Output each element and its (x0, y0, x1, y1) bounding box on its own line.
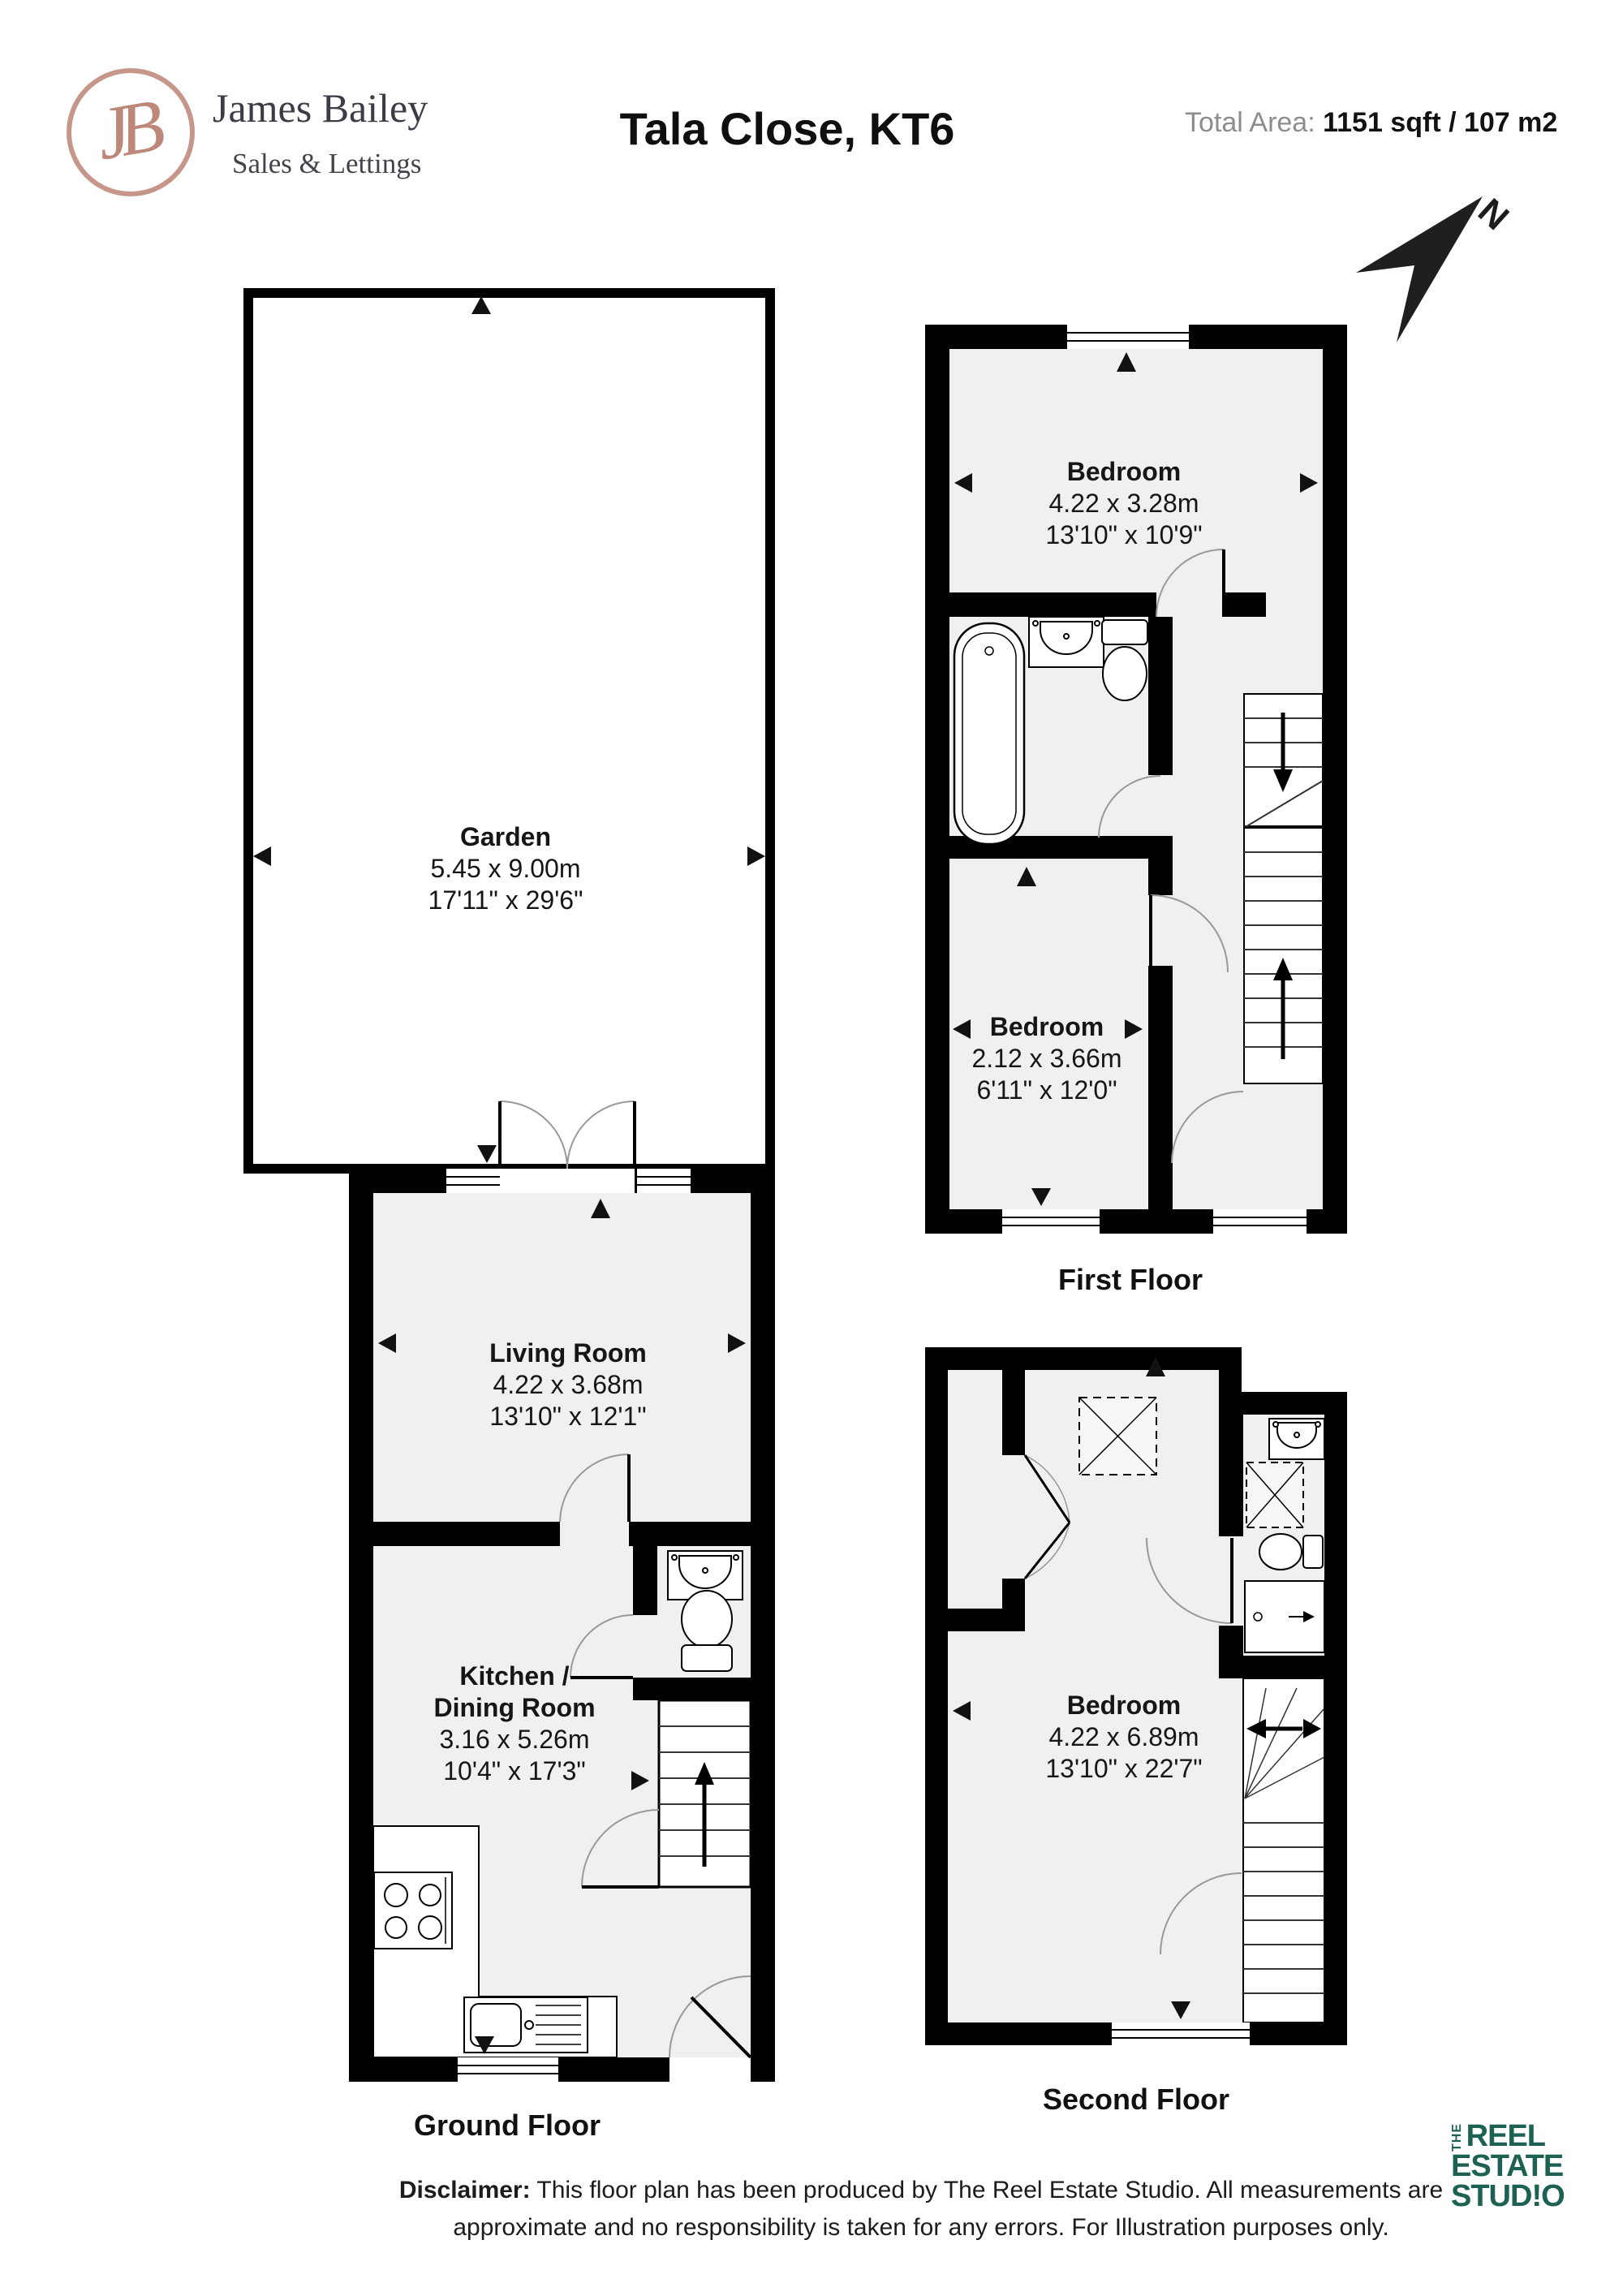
interior-wall (925, 592, 1156, 617)
window (1067, 325, 1189, 349)
stairs-icon (1244, 694, 1323, 1083)
toilet-icon (682, 1591, 732, 1671)
north-arrow-icon: N (1351, 188, 1513, 351)
window (458, 2057, 558, 2082)
studio-logo-estate: ESTATE (1451, 2152, 1565, 2182)
total-area: Total Area: 1151 sqft / 107 m2 (1185, 107, 1558, 139)
north-label: N (1470, 191, 1513, 238)
bathtub-icon (954, 623, 1024, 844)
total-area-value: 1151 sqft / 107 m2 (1323, 107, 1557, 138)
brand-tagline: Sales & Lettings (232, 148, 421, 180)
toilet-icon (1102, 620, 1147, 700)
brand-logo: JB (67, 68, 195, 196)
disclaimer-label: Disclaimer: (399, 2177, 531, 2203)
interior-wall (1219, 1626, 1243, 1656)
interior-wall (1219, 1656, 1347, 1678)
interior-wall (1219, 1415, 1243, 1536)
garden-outline (248, 293, 770, 1169)
first-floor-label: First Floor (1058, 1263, 1203, 1297)
total-area-label: Total Area: (1185, 107, 1315, 138)
interior-wall (925, 836, 1173, 859)
shower-tray-icon (1245, 1581, 1324, 1652)
interior-wall (1148, 966, 1173, 1234)
skylight-icon (1246, 1462, 1303, 1527)
studio-logo-studio: STUD!O (1451, 2182, 1565, 2212)
hob-icon (374, 1872, 452, 1949)
ground-floor-plan (243, 288, 775, 2082)
studio-logo-the: THE (1451, 2123, 1464, 2152)
page-title: Tala Close, KT6 (544, 102, 1031, 155)
bedroom-second-label: Bedroom 4.22 x 6.89m 13'10" x 22'7" (1045, 1690, 1202, 1785)
second-floor-label: Second Floor (1043, 2083, 1229, 2117)
disclaimer-text: This floor plan has been produced by The… (453, 2177, 1443, 2241)
interior-wall (1148, 617, 1173, 775)
brand-name: James Bailey (213, 84, 428, 131)
floorplan-page: { "header": { "brand_initials": "JB", "b… (0, 0, 1623, 2296)
sink-icon (1029, 617, 1104, 667)
stairs-icon (659, 1700, 751, 1887)
stairs-icon (1243, 1678, 1324, 2022)
interior-wall (1148, 859, 1173, 895)
brand-initials: JB (90, 81, 171, 178)
kitchen-label: Kitchen / Dining Room 3.16 x 5.26m 10'4"… (433, 1661, 595, 1787)
studio-logo-reel: REEL (1466, 2122, 1545, 2152)
disclaimer: Disclaimer: This floor plan has been pro… (394, 2172, 1449, 2246)
window (1112, 2022, 1250, 2045)
skylight-icon (1079, 1398, 1156, 1475)
ground-floor-label: Ground Floor (414, 2109, 601, 2143)
living-room-label: Living Room 4.22 x 3.68m 13'10" x 12'1" (489, 1338, 647, 1432)
studio-logo: THE REEL ESTATE STUD!O (1451, 2122, 1565, 2212)
garden-label: Garden 5.45 x 9.00m 17'11" x 29'6" (428, 821, 583, 916)
toilet-icon (1259, 1534, 1323, 1570)
interior-wall (1224, 592, 1266, 617)
sink-icon (1269, 1419, 1324, 1459)
bedroom-first-small-label: Bedroom 2.12 x 3.66m 6'11" x 12'0" (972, 1011, 1122, 1106)
bedroom-first-large-label: Bedroom 4.22 x 3.28m 13'10" x 10'9" (1045, 456, 1202, 551)
